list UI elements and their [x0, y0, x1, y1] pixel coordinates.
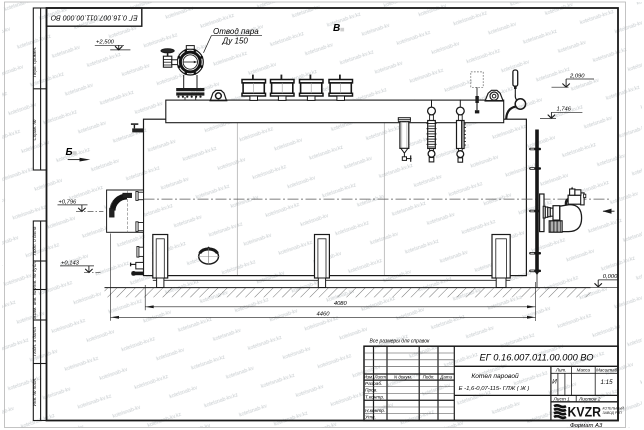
svg-text:Е -1,6-0,07-115- ГЛЖ ( Ж ): Е -1,6-0,07-115- ГЛЖ ( Ж ) — [459, 386, 530, 392]
svg-text:Подп. и дата: Подп. и дата — [32, 327, 37, 356]
svg-text:Масштаб: Масштаб — [596, 368, 617, 373]
svg-text:Дата: Дата — [439, 375, 452, 380]
svg-text:N докум.: N докум. — [394, 375, 412, 380]
svg-text:ЕГ 0.16.007.011.00.000 ВО: ЕГ 0.16.007.011.00.000 ВО — [51, 13, 138, 22]
svg-text:+2,500: +2,500 — [96, 40, 115, 46]
svg-text:Подп.: Подп. — [423, 375, 435, 380]
svg-text:Пров.: Пров. — [365, 388, 378, 394]
svg-text:Отвод пара: Отвод пара — [213, 27, 259, 36]
svg-text:Инв. № подл.: Инв. № подл. — [32, 378, 37, 407]
svg-text:ЗАВОД РЗП: ЗАВОД РЗП — [603, 411, 623, 415]
svg-text:Все размеры для справок: Все размеры для справок — [370, 339, 431, 345]
svg-text:0,000: 0,000 — [603, 274, 618, 280]
svg-text:4080: 4080 — [334, 301, 348, 307]
svg-text:4460: 4460 — [317, 312, 331, 318]
svg-text:1,746: 1,746 — [557, 106, 572, 112]
svg-text:КОТЕЛЬНЫЙ: КОТЕЛЬНЫЙ — [603, 407, 625, 411]
svg-text:И: И — [552, 379, 557, 386]
svg-text:Б: Б — [66, 147, 73, 158]
svg-text:Справ. №: Справ. № — [32, 120, 37, 141]
svg-text:Масса: Масса — [577, 368, 591, 373]
svg-text:Лист 1: Лист 1 — [553, 396, 571, 402]
svg-text:+0,796: +0,796 — [58, 199, 77, 205]
svg-text:В: В — [333, 23, 340, 34]
svg-text:KVZR: KVZR — [568, 404, 602, 420]
svg-text:Т.контр.: Т.контр. — [365, 394, 384, 400]
svg-text:Разраб.: Разраб. — [365, 381, 382, 387]
svg-text:Изм.: Изм. — [364, 375, 374, 380]
svg-text:Ду 150: Ду 150 — [222, 37, 249, 46]
svg-text:Лист: Лист — [373, 375, 386, 380]
svg-text:Взам. инв. №: Взам. инв. № — [32, 290, 37, 318]
svg-text:ЕГ 0.16.007.011.00.000 ВО: ЕГ 0.16.007.011.00.000 ВО — [480, 353, 594, 363]
svg-text:Н.контр.: Н.контр. — [365, 408, 385, 414]
svg-text:Перв. примен.: Перв. примен. — [32, 47, 37, 78]
svg-text:Подп. и дата: Подп. и дата — [32, 226, 37, 255]
svg-text:Котел паровой: Котел паровой — [471, 372, 519, 380]
svg-text:Лит.: Лит. — [555, 368, 567, 373]
svg-text:1:15: 1:15 — [600, 379, 613, 386]
svg-text:+0,143: +0,143 — [61, 260, 80, 266]
svg-text:Листов 2: Листов 2 — [578, 396, 601, 402]
svg-text:Утв.: Утв. — [365, 415, 376, 421]
svg-text:Инв. № дубл.: Инв. № дубл. — [32, 261, 37, 289]
svg-text:Формат А3: Формат А3 — [570, 423, 603, 429]
